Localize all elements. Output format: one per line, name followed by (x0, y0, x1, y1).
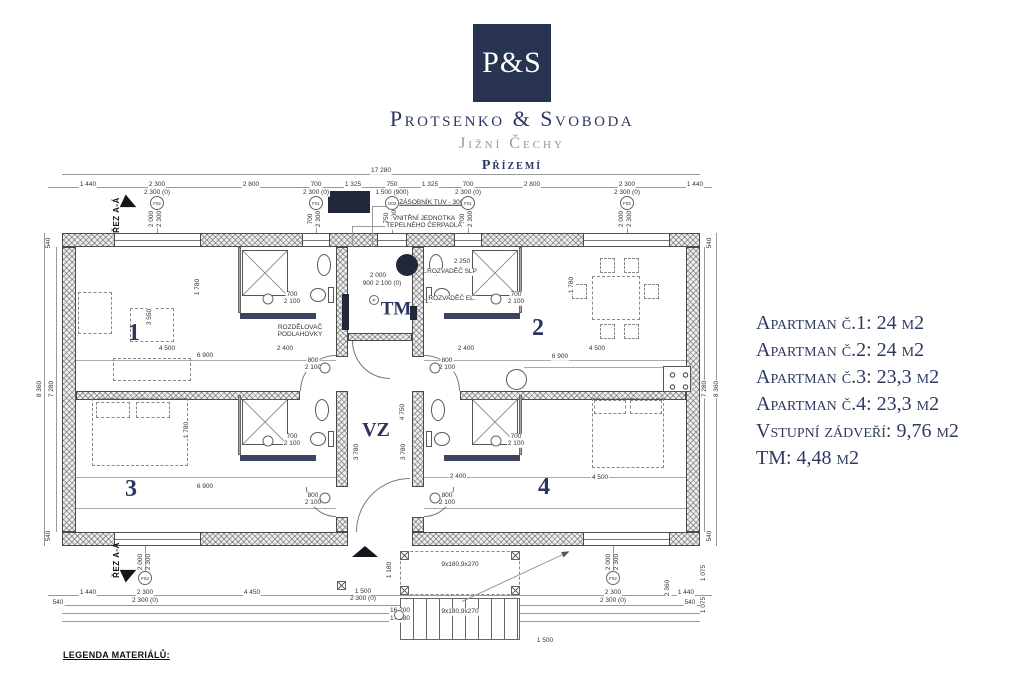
terrace-post (337, 581, 346, 590)
dimension-label: 2 300 (148, 182, 166, 189)
dimension-label: 2 250 (453, 259, 471, 266)
dimension-label: 2 100 (507, 441, 525, 448)
room-label: TM (381, 300, 412, 319)
dimension-label: 17 280 (370, 168, 392, 175)
dimension-label: 1 780 (569, 276, 576, 294)
dimension-label: 7 280 (702, 380, 709, 398)
window (455, 233, 481, 247)
wall-segment (62, 532, 115, 546)
dimension-label: 540 (707, 530, 714, 543)
window-tag: F02 (138, 571, 152, 585)
dimension-label: 700 (310, 182, 323, 189)
dimension-label: 2 100 (283, 299, 301, 306)
dimension-label: 4 750 (400, 403, 407, 421)
water-tank (396, 254, 418, 276)
terrace-post (400, 551, 409, 560)
dimension-label: 2 400 (276, 346, 294, 353)
dimension-label: 540 (684, 600, 697, 607)
dimension-label: 3 780 (401, 443, 408, 461)
wall-segment (481, 233, 584, 247)
dimension-label: 4 450 (243, 590, 261, 597)
wall-segment (200, 532, 348, 546)
dim-line (62, 621, 700, 622)
toilet-tank (328, 431, 334, 447)
wall-segment (62, 247, 76, 532)
partition-wall (240, 455, 316, 461)
room-label: VZ (362, 420, 390, 440)
dimension-label: 2 400 (449, 474, 467, 481)
dimension-label: 900 2 100 (0) (362, 281, 403, 288)
dimension-label: 9x180,9x270 (440, 609, 479, 616)
table-outline (592, 276, 640, 320)
entrance-marker (352, 546, 378, 557)
window-tag: F02 (606, 571, 620, 585)
chair-outline (600, 258, 615, 273)
dimension-label: 2 100 (438, 500, 456, 507)
kitchen-sink (506, 369, 527, 390)
window-tag: F01 (309, 196, 323, 210)
dimension-label: 2 000 (138, 553, 145, 571)
wall-segment (412, 517, 424, 532)
dimension-label: 1 075 (701, 564, 708, 582)
dimension-label: 2 300 (316, 210, 323, 228)
dimension-label: 750 (386, 182, 399, 189)
stairs-arrow-head (561, 549, 571, 558)
page-header: Protsenko & Svoboda Jižní Čechy Přízemí (262, 106, 762, 174)
floor-title: Přízemí (262, 158, 762, 174)
dimension-label: 2 300 (614, 553, 621, 571)
dimension-label: 1 440 (79, 590, 97, 597)
washbasin (431, 399, 445, 421)
dimension-label: 1 780 (184, 421, 191, 439)
door-tag (263, 436, 274, 447)
leader-line (352, 226, 353, 247)
dimension-label: 9x180,9x270 (440, 562, 479, 569)
dimension-label: 2 300 (146, 553, 153, 571)
door-arc (352, 341, 390, 379)
list-item: Apartman č.4: 23,3 m2 (756, 391, 996, 418)
dimension-label: 700 (462, 182, 475, 189)
door-tag (491, 436, 502, 447)
dim-line (62, 613, 700, 614)
door-tag (320, 363, 331, 374)
dimension-label: 2 000 (369, 273, 387, 280)
dimension-label: 1 500 (536, 638, 554, 645)
pillow-outline (630, 400, 662, 414)
terrace-post (400, 586, 409, 595)
window (115, 233, 200, 247)
chair-outline (644, 284, 659, 299)
dimension-label: 540 (707, 237, 714, 250)
dim-line (62, 605, 700, 606)
wall-segment (406, 233, 455, 247)
chair-outline (624, 258, 639, 273)
chair-outline (624, 324, 639, 339)
tech-panel (342, 294, 349, 330)
terrace-outline (400, 551, 520, 595)
dimension-label: 2 400 (457, 346, 475, 353)
legend-title: LEGENDA MATERIÁLŮ: (63, 650, 170, 660)
room-label: 2 (532, 316, 544, 340)
toilet-tank (328, 287, 334, 303)
door-tag (320, 493, 331, 504)
wall-segment (336, 517, 348, 532)
dimension-label: 700 (308, 213, 315, 226)
wall-segment (412, 391, 424, 487)
dimension-label: 2 300 (468, 210, 475, 228)
toilet (310, 432, 326, 446)
window-tag: P (369, 295, 379, 305)
dimension-label: ROZVADĚČ SLP (426, 269, 478, 276)
dim-line (44, 233, 45, 546)
toilet (310, 288, 326, 302)
shower (242, 250, 288, 296)
company-name: Protsenko & Svoboda (262, 106, 762, 132)
section-flag (120, 194, 140, 213)
window (303, 233, 329, 247)
dimension-label: 2 300 (0) (599, 598, 627, 605)
room-label: 1 (128, 321, 140, 345)
window (584, 532, 669, 546)
furniture-outline (78, 292, 112, 334)
dimension-label: 6 900 (551, 354, 569, 361)
dimension-label: 2 300 (618, 182, 636, 189)
dimension-label: 1 325 (344, 182, 362, 189)
dimension-label: 2 100 (438, 365, 456, 372)
kitchen-counter-line (524, 367, 686, 368)
partition-wall (444, 313, 520, 319)
dimension-label: ROZVADĚČ EL. (427, 296, 476, 303)
washbasin (317, 254, 331, 276)
dimension-label: ŘEZ A-Á (113, 196, 121, 234)
dimension-label: 1 075 (701, 596, 708, 614)
dimension-label: 1 780 (195, 278, 202, 296)
dimension-label: PODLAHOVKY (277, 332, 324, 339)
partition-wall (240, 313, 316, 319)
list-item: Apartman č.3: 23,3 m2 (756, 364, 996, 391)
window-tag: O02 (385, 196, 399, 210)
dimension-label: 2 360 (665, 579, 672, 597)
dimension-label: 2 100 (283, 441, 301, 448)
washbasin (315, 399, 329, 421)
dimension-label: 2 000 (149, 210, 156, 228)
dimension-label: TEPELNÉHO ČERPADLA (385, 223, 463, 230)
dimension-label: 1 325 (421, 182, 439, 189)
room-label: 4 (538, 475, 550, 499)
dim-line (56, 247, 57, 532)
heat-pump-unit (328, 191, 370, 213)
dimension-label: 2 300 (604, 590, 622, 597)
list-item: Apartman č.2: 24 m2 (756, 337, 996, 364)
door-tag (430, 493, 441, 504)
apartment-area-list: Apartman č.1: 24 m2 Apartman č.2: 24 m2 … (756, 310, 996, 472)
window (584, 233, 669, 247)
chair-outline (600, 324, 615, 339)
entrance-door-arc (356, 478, 410, 532)
wall-segment (412, 532, 584, 546)
terrace-post (511, 586, 520, 595)
region-name: Jižní Čechy (262, 135, 762, 153)
door-tag (430, 363, 441, 374)
dimension-label: 6 900 (196, 484, 214, 491)
partition-wall (444, 455, 520, 461)
window (115, 532, 200, 546)
window-tag: F01 (461, 196, 475, 210)
dimension-label: ZÁSOBNÍK TUV - 300l (398, 200, 466, 207)
dimension-label: 1 180 (387, 561, 394, 579)
list-item: TM: 4,48 m2 (756, 445, 996, 472)
dimension-label: ŘEZ A-Á (113, 541, 121, 579)
wall-segment (336, 391, 348, 487)
wall-segment (348, 333, 412, 341)
pillow-outline (136, 402, 170, 418)
door-tag (394, 610, 404, 620)
dimension-label: 2 800 (523, 182, 541, 189)
window-tag: F02 (620, 196, 634, 210)
stairs (400, 598, 520, 640)
door-tag (263, 294, 274, 305)
wall-segment (669, 532, 700, 546)
dimension-label: 540 (46, 237, 53, 250)
window (378, 233, 406, 247)
dimension-label: 2 100 (507, 299, 525, 306)
dimension-label: 8 360 (37, 380, 44, 398)
logo-text: P&S (482, 46, 542, 80)
interior-line (76, 508, 336, 509)
dimension-label: 2 800 (242, 182, 260, 189)
dimension-label: 6 900 (196, 353, 214, 360)
list-item: Vstupní zádveří: 9,76 m2 (756, 418, 996, 445)
partition-wall (238, 247, 241, 313)
dimension-label: 4 500 (588, 346, 606, 353)
dimension-label: 2 000 (606, 553, 613, 571)
partition-wall (238, 395, 241, 455)
pillow-outline (96, 402, 130, 418)
dimension-label: 540 (52, 600, 65, 607)
company-logo: P&S (473, 24, 551, 102)
list-item: Apartman č.1: 24 m2 (756, 310, 996, 337)
dimension-label: 2 300 (627, 210, 634, 228)
shower (472, 250, 518, 296)
dimension-label: 2 300 (157, 210, 164, 228)
dimension-label: 2 300 (0) (349, 596, 377, 603)
wall-segment (669, 233, 700, 247)
wall-segment (62, 233, 115, 247)
door-tag (491, 294, 502, 305)
pillow-outline (594, 400, 626, 414)
window-tag: F02 (150, 196, 164, 210)
furniture-outline (113, 358, 191, 381)
dimension-label: 7 280 (49, 380, 56, 398)
cooktop (663, 366, 691, 392)
interior-line (424, 508, 686, 509)
dimension-label: 3 780 (354, 443, 361, 461)
dimension-label: 1 440 (677, 590, 695, 597)
terrace-post (511, 551, 520, 560)
dimension-label: 1 440 (686, 182, 704, 189)
dimension-label: 8 360 (714, 380, 721, 398)
dimension-label: 540 (46, 530, 53, 543)
dimension-label: 4 500 (158, 346, 176, 353)
wall-segment (200, 233, 303, 247)
toilet (434, 432, 450, 446)
interior-line (76, 477, 336, 478)
dimension-label: 2 300 (0) (131, 598, 159, 605)
wall-segment (329, 233, 378, 247)
room-label: 3 (125, 477, 137, 501)
dimension-label: 2 000 (619, 210, 626, 228)
toilet-tank (426, 431, 432, 447)
dimension-label: 1 440 (79, 182, 97, 189)
dimension-label: 4 500 (591, 475, 609, 482)
dimension-label: 2 300 (136, 590, 154, 597)
dimension-label: 3 550 (147, 308, 154, 326)
